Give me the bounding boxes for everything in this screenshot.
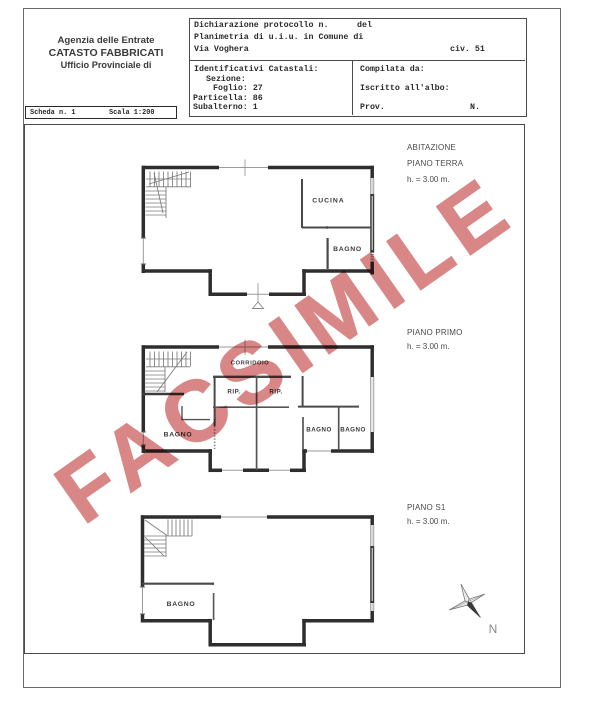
svg-text:CUCINA: CUCINA [312,198,344,205]
svg-text:N: N [489,622,498,636]
svg-text:BAGNO: BAGNO [306,427,332,434]
svg-text:BAGNO: BAGNO [340,427,366,434]
svg-text:BAGNO: BAGNO [167,601,196,608]
